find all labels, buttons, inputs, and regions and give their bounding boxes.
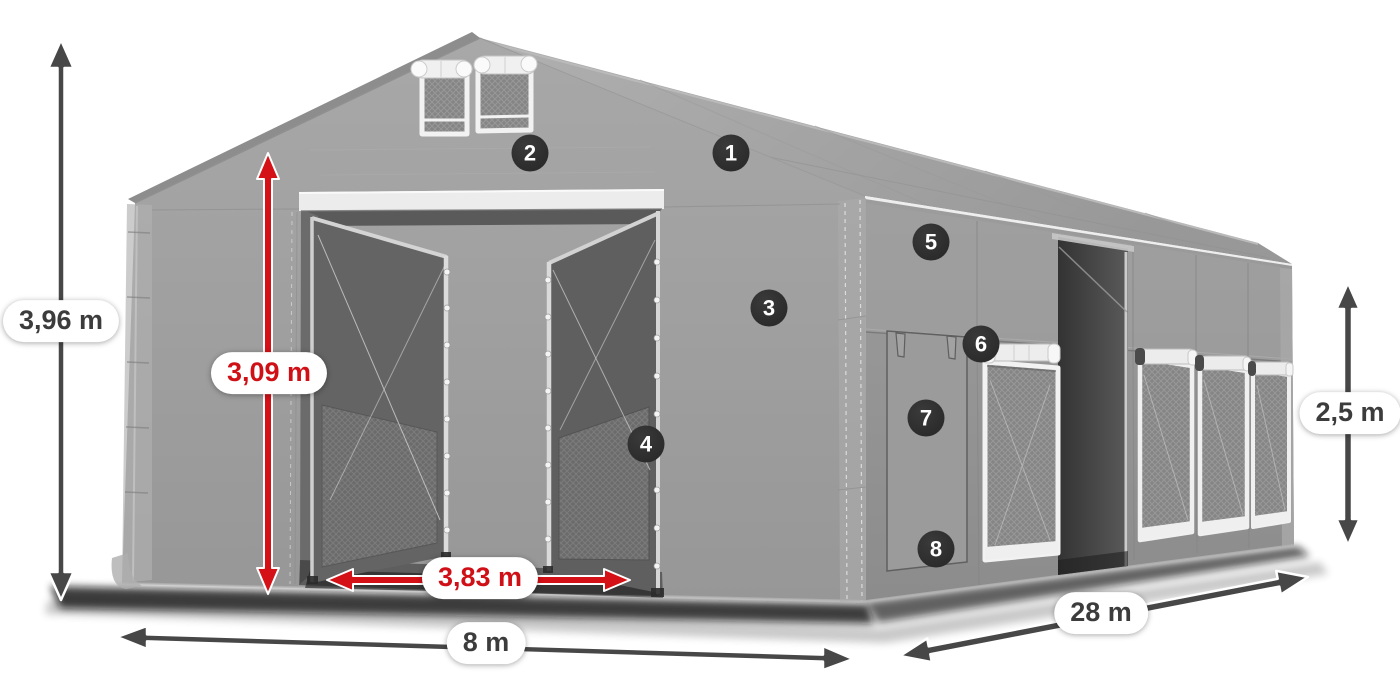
right-entrance-door <box>545 211 660 594</box>
callout-badge-6: 6 <box>963 326 1000 363</box>
roll-end-cap <box>1135 348 1145 365</box>
side-window-2 <box>1135 348 1197 540</box>
dimension-label-entrance-width: 3,83 m <box>422 557 538 599</box>
left-entrance-door <box>312 216 450 583</box>
side-sliding-doorway <box>1052 233 1134 575</box>
gable-vent-left <box>411 60 472 134</box>
callout-badge-3: 3 <box>751 290 788 327</box>
callout-badge-8: 8 <box>918 531 955 568</box>
callout-badge-4: 4 <box>628 426 665 463</box>
flap-hook <box>896 333 905 357</box>
tent-illustration <box>0 0 1400 700</box>
front-left-corner-pole <box>122 204 152 583</box>
dimension-label-inner-height: 3,09 m <box>211 352 327 394</box>
callout-badge-2: 2 <box>512 135 549 172</box>
dimension-label-length: 28 m <box>1054 592 1148 634</box>
side-window-4 <box>1248 361 1293 527</box>
dimension-label-width: 8 m <box>447 622 526 664</box>
callout-badge-5: 5 <box>913 224 950 261</box>
roll-end-cap <box>1195 355 1204 371</box>
side-window-1 <box>982 342 1060 560</box>
front-right-corner-band <box>838 198 866 602</box>
rolled-cover <box>1138 349 1196 364</box>
gable-vent-right <box>474 56 537 131</box>
flap-hook <box>947 336 956 359</box>
product-diagram: 3,96 m 3,09 m 3,83 m 8 m 28 m 2,5 m 1 2 … <box>0 0 1400 700</box>
callout-badge-1: 1 <box>713 135 750 172</box>
callout-badge-7: 7 <box>908 400 945 437</box>
dimension-label-side-height: 2,5 m <box>1299 392 1400 434</box>
roll-end-cap <box>1248 361 1256 376</box>
dimension-label-total-height: 3,96 m <box>3 300 119 342</box>
side-window-3 <box>1195 355 1251 534</box>
